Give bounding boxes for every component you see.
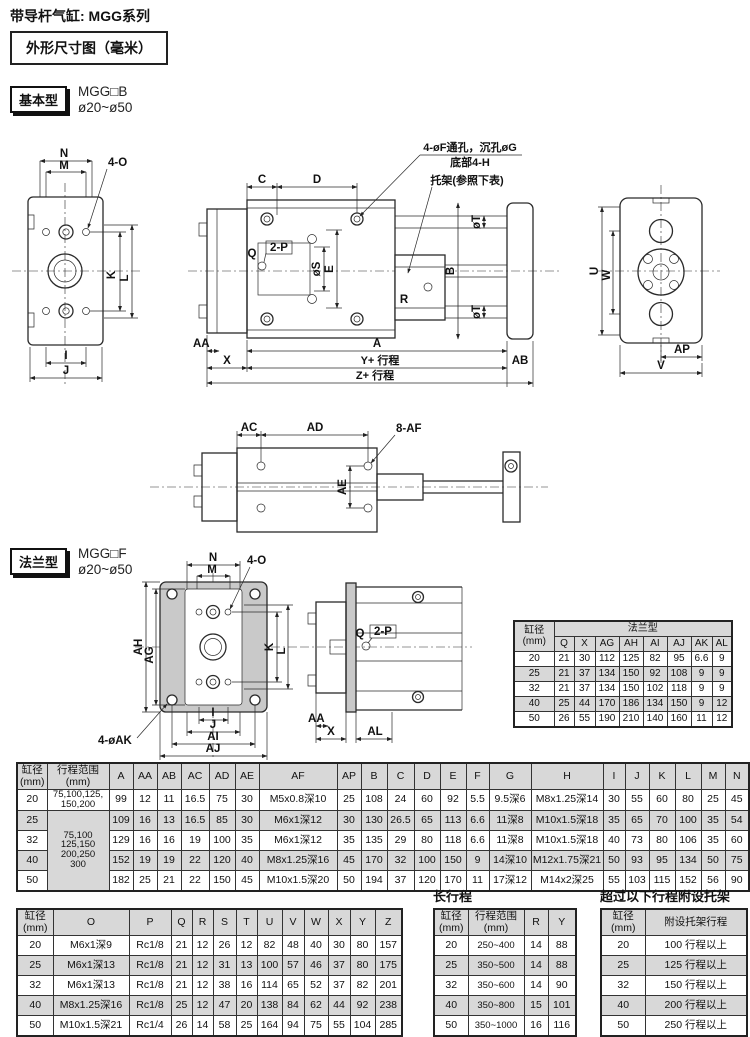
- cell: 250 行程以上: [645, 1016, 747, 1037]
- cell: 65: [282, 976, 304, 996]
- dim-label-m: M: [207, 564, 217, 576]
- cell: 55: [328, 1016, 350, 1037]
- cell: 12: [712, 697, 732, 712]
- column-header: Z: [375, 909, 402, 936]
- cell: 12: [712, 712, 732, 728]
- cell: 32: [601, 976, 645, 996]
- dim-label-l: L: [276, 647, 288, 654]
- cell: 55: [574, 712, 595, 728]
- column-header: U: [257, 909, 282, 936]
- cell: 30: [328, 936, 350, 956]
- cell: 114: [257, 976, 282, 996]
- column-header: F: [466, 763, 489, 790]
- cell: 20: [17, 936, 53, 956]
- dim-label-j: J: [210, 719, 216, 731]
- cell: 9: [691, 697, 712, 712]
- page-title: 带导杆气缸: MGG系列: [10, 6, 150, 26]
- dim-label-8af: 8-AF: [396, 423, 422, 435]
- column-header: 缸径 (mm): [514, 621, 554, 652]
- column-header: 行程范围 (mm): [47, 763, 109, 790]
- dim-label-ab: AB: [512, 355, 529, 367]
- cell: 45: [235, 870, 259, 891]
- column-header: 缸径 (mm): [17, 909, 53, 936]
- column-header: AJ: [667, 637, 691, 652]
- cell: 30: [235, 790, 259, 811]
- cell: 26: [171, 1016, 192, 1037]
- cell: 80: [414, 830, 440, 850]
- table-row: 20 75,100,125, 150,200 99121116.57530M5x…: [17, 790, 749, 811]
- dim-label-y-stroke: Y+ 行程: [361, 353, 400, 367]
- cell: 94: [282, 1016, 304, 1037]
- column-header: H: [531, 763, 603, 790]
- column-header: AF: [259, 763, 337, 790]
- dim-label-ai: AI: [207, 731, 219, 743]
- cell: 16: [133, 830, 157, 850]
- cell: 92: [643, 667, 667, 682]
- table-row: 40200 行程以上: [601, 996, 747, 1016]
- table-row: 32213713415010211899: [514, 682, 732, 697]
- cell: 40: [17, 850, 47, 870]
- dim-label-b: B: [445, 267, 457, 275]
- cell: 104: [350, 1016, 375, 1037]
- column-header: AA: [133, 763, 157, 790]
- cell: 14: [524, 976, 548, 996]
- cell: 9: [466, 850, 489, 870]
- dim-label-ac: AC: [241, 422, 258, 434]
- cell: 32: [17, 830, 47, 850]
- cell: Rc1/8: [129, 956, 171, 976]
- dim-label-u: U: [589, 267, 601, 275]
- cell: 75: [725, 850, 749, 870]
- cell: 16: [524, 1016, 548, 1037]
- cell: 37: [328, 976, 350, 996]
- dim-label-n: N: [60, 148, 68, 160]
- dim-label-n: N: [209, 552, 217, 564]
- cell: 50: [603, 850, 625, 870]
- cell: 19: [157, 850, 181, 870]
- cell: 11: [691, 712, 712, 728]
- cell: 9: [712, 682, 732, 697]
- cell: 25: [236, 1016, 257, 1037]
- dim-label-w: W: [601, 269, 613, 280]
- cell: 19: [133, 850, 157, 870]
- cell: 186: [619, 697, 643, 712]
- cell: 50: [601, 1016, 645, 1037]
- cell: 44: [574, 697, 595, 712]
- cell: 21: [554, 652, 574, 667]
- cell: Rc1/4: [129, 1016, 171, 1037]
- cell: 170: [595, 697, 619, 712]
- cell: 37: [574, 682, 595, 697]
- cell: 21: [157, 870, 181, 891]
- column-header: D: [414, 763, 440, 790]
- cell: 20: [514, 652, 554, 667]
- cell: 50: [434, 1016, 468, 1037]
- column-header: 缸径 (mm): [601, 909, 645, 936]
- cell: 11深8: [489, 830, 531, 850]
- cell: 50: [701, 850, 725, 870]
- dim-label-phis: øS: [311, 261, 323, 276]
- column-header: AL: [712, 637, 732, 652]
- dim-label-4o: 4-O: [108, 157, 127, 169]
- column-header: S: [213, 909, 236, 936]
- cell: 45: [337, 850, 361, 870]
- cell: 35: [337, 830, 361, 850]
- cell: 238: [375, 996, 402, 1016]
- cell: 13: [236, 956, 257, 976]
- cell: 150: [619, 682, 643, 697]
- cell: 70: [649, 810, 675, 830]
- cell: 26: [213, 936, 236, 956]
- cell: 84: [282, 996, 304, 1016]
- dim-label-k: K: [106, 270, 118, 279]
- column-header: 行程范围 (mm): [468, 909, 524, 936]
- port-label-q: Q: [248, 248, 257, 260]
- dimension-section-title: 外形尺寸图（毫米）: [10, 31, 168, 65]
- cell: 157: [375, 936, 402, 956]
- column-header: L: [675, 763, 701, 790]
- dim-label-l: L: [119, 274, 131, 281]
- dim-label-v: V: [657, 360, 665, 372]
- cell: 12: [192, 976, 213, 996]
- cell: M6x1深12: [259, 810, 337, 830]
- cell: 25: [514, 667, 554, 682]
- table-row: 20213011212582956.69: [514, 652, 732, 667]
- cell: 135: [361, 830, 387, 850]
- cell: 100: [209, 830, 235, 850]
- cell: 13: [157, 810, 181, 830]
- cell: 108: [667, 667, 691, 682]
- cell: 20: [434, 936, 468, 956]
- column-header: V: [282, 909, 304, 936]
- cell: 65: [625, 810, 649, 830]
- cell: 60: [725, 830, 749, 850]
- cell: 21: [171, 936, 192, 956]
- cell: 164: [257, 1016, 282, 1037]
- cell: 16: [133, 810, 157, 830]
- cell: 6.6: [691, 652, 712, 667]
- column-header: AP: [337, 763, 361, 790]
- cell: 108: [361, 790, 387, 811]
- cell: 150: [209, 870, 235, 891]
- cell: 26.5: [387, 810, 414, 830]
- dim-label-phit-top: øT: [471, 215, 483, 229]
- cell: 21: [171, 956, 192, 976]
- cell: 134: [675, 850, 701, 870]
- dim-label-ap: AP: [674, 344, 690, 356]
- cell: 152: [109, 850, 133, 870]
- table-row: 40350~80015101: [434, 996, 576, 1016]
- cell: 350~800: [468, 996, 524, 1016]
- table-row: 32150 行程以上: [601, 976, 747, 996]
- dim-label-i: I: [211, 707, 214, 719]
- cell: 80: [675, 790, 701, 811]
- table-row: 402544170186134150912: [514, 697, 732, 712]
- long-stroke-title: 长行程: [433, 886, 472, 905]
- bracket-note: 托架(参照下表): [430, 173, 504, 187]
- cell: 285: [375, 1016, 402, 1037]
- cell: 35: [235, 830, 259, 850]
- basic-model: MGG□B: [78, 84, 132, 100]
- cell: 20: [601, 936, 645, 956]
- cell: 101: [548, 996, 576, 1016]
- cell: 14: [524, 936, 548, 956]
- cell: 35: [603, 810, 625, 830]
- cell: M10x1.5深20: [259, 870, 337, 891]
- cell: 65: [414, 810, 440, 830]
- cell: 35: [701, 810, 725, 830]
- cell: 100: [257, 956, 282, 976]
- cell: 118: [667, 682, 691, 697]
- table-row: 50M10x1.5深21Rc1/426145825164947555104285: [17, 1016, 402, 1037]
- dim-label-e: E: [324, 265, 336, 273]
- cell: 106: [675, 830, 701, 850]
- cell: 44: [328, 996, 350, 1016]
- table-row: 32350~6001490: [434, 976, 576, 996]
- cell: 38: [213, 976, 236, 996]
- cell: 250~400: [468, 936, 524, 956]
- column-header: C: [387, 763, 414, 790]
- cell: 150: [667, 697, 691, 712]
- cell: M10x1.5深18: [531, 830, 603, 850]
- cell: Rc1/8: [129, 976, 171, 996]
- cell: 25: [554, 697, 574, 712]
- cell: 134: [643, 697, 667, 712]
- dim-label-ae: AE: [337, 479, 349, 495]
- column-header: 缸径 (mm): [17, 763, 47, 790]
- cell: 80: [350, 936, 375, 956]
- dim-label-aj: AJ: [206, 743, 221, 755]
- flange-side-view: Q 2-P AA X AL: [300, 583, 472, 743]
- cell: 22: [181, 870, 209, 891]
- cell: 22: [181, 850, 209, 870]
- column-header: AH: [619, 637, 643, 652]
- dim-label-c: C: [258, 174, 266, 186]
- cell: 90: [548, 976, 576, 996]
- cell: 134: [595, 667, 619, 682]
- table-row: 5026551902101401601112: [514, 712, 732, 728]
- cell: M6x1深9: [53, 936, 129, 956]
- cell: 80: [350, 956, 375, 976]
- cell: 118: [440, 830, 466, 850]
- cell: 30: [574, 652, 595, 667]
- basic-side-view: AC AD 8-AF AE: [150, 422, 548, 532]
- cell: 160: [667, 712, 691, 728]
- cell: 25: [171, 996, 192, 1016]
- column-header: P: [129, 909, 171, 936]
- cell: 150: [440, 850, 466, 870]
- cell: 75,100 125,150 200,250 300: [47, 810, 109, 891]
- cell: 17深12: [489, 870, 531, 891]
- column-header: W: [304, 909, 328, 936]
- cell: 32: [514, 682, 554, 697]
- cell: M8x1.25深14: [531, 790, 603, 811]
- column-header: M: [701, 763, 725, 790]
- dim-label-j: J: [63, 365, 69, 377]
- column-header: E: [440, 763, 466, 790]
- cell: 82: [257, 936, 282, 956]
- cell: 15: [524, 996, 548, 1016]
- cell: M5x0.8深10: [259, 790, 337, 811]
- cell: 55: [625, 790, 649, 811]
- cell: 175: [375, 956, 402, 976]
- cell: 85: [209, 810, 235, 830]
- cell: 30: [337, 810, 361, 830]
- cell: 25: [133, 870, 157, 891]
- cell: 100 行程以上: [645, 936, 747, 956]
- column-header: Y: [548, 909, 576, 936]
- flange-dimension-table: 缸径 (mm) 法兰型 Q X AG AH AI AJ AK AL 202130…: [513, 620, 733, 728]
- table-row: 25350~5001488: [434, 956, 576, 976]
- cell: 50: [337, 870, 361, 891]
- cell: 31: [213, 956, 236, 976]
- column-header: AB: [157, 763, 181, 790]
- cell: 82: [350, 976, 375, 996]
- column-header: X: [574, 637, 595, 652]
- basic-model-block: MGG□B ø20~ø50: [78, 84, 132, 116]
- cell: 138: [257, 996, 282, 1016]
- cell: 37: [328, 956, 350, 976]
- basic-left-end-view: N M 4-O K L I J: [12, 148, 142, 387]
- table-row: 50250 行程以上: [601, 1016, 747, 1037]
- cell: Rc1/8: [129, 996, 171, 1016]
- cell: 80: [649, 830, 675, 850]
- dim-label-d: D: [313, 174, 321, 186]
- table-row: 50350~100016116: [434, 1016, 576, 1037]
- catalog-page: 带导杆气缸: MGG系列 外形尺寸图（毫米） 基本型 MGG□B ø20~ø50…: [0, 0, 750, 1037]
- basic-type-badge: 基本型: [10, 86, 67, 113]
- port-label-2p: 2-P: [270, 242, 288, 254]
- dim-label-k: K: [264, 642, 276, 651]
- hole-note-line2: 底部4-H: [450, 155, 490, 169]
- cell: 109: [109, 810, 133, 830]
- cell: 210: [619, 712, 643, 728]
- cell: 5.5: [466, 790, 489, 811]
- port-label-2p: 2-P: [374, 626, 392, 638]
- cell: 73: [625, 830, 649, 850]
- flange-type-drawing: N M 4-O AH AG K L I J AI: [0, 545, 510, 760]
- cell: M6x1深13: [53, 976, 129, 996]
- cell: 21: [554, 667, 574, 682]
- cell: M6x1深13: [53, 956, 129, 976]
- dim-label-4o: 4-O: [247, 555, 266, 567]
- cell: 88: [548, 956, 576, 976]
- cell: 25: [601, 956, 645, 976]
- cell: 100: [675, 810, 701, 830]
- table-row: 20100 行程以上: [601, 936, 747, 956]
- column-header: Q: [171, 909, 192, 936]
- cell: 95: [649, 850, 675, 870]
- cell: 82: [643, 652, 667, 667]
- cell: 9: [712, 667, 732, 682]
- cell: 9: [691, 667, 712, 682]
- cell: 113: [440, 810, 466, 830]
- cell: 40: [235, 850, 259, 870]
- cell: 32: [387, 850, 414, 870]
- cell: 9: [712, 652, 732, 667]
- column-header: AI: [643, 637, 667, 652]
- cell: 25: [337, 790, 361, 811]
- cell: 12: [133, 790, 157, 811]
- cell: 37: [574, 667, 595, 682]
- column-header: A: [109, 763, 133, 790]
- column-header: G: [489, 763, 531, 790]
- cell: 20: [236, 996, 257, 1016]
- column-header: 缸径 (mm): [434, 909, 468, 936]
- cell: 40: [17, 996, 53, 1016]
- column-header: 附设托架行程: [645, 909, 747, 936]
- cell: 62: [304, 996, 328, 1016]
- column-header: AD: [209, 763, 235, 790]
- cell: 12: [192, 936, 213, 956]
- basic-right-end-view: U W AP V: [589, 185, 720, 377]
- dim-label-4ak: 4-øAK: [98, 735, 133, 747]
- cell: 6.6: [466, 810, 489, 830]
- cell: 25: [434, 956, 468, 976]
- column-header: X: [328, 909, 350, 936]
- cell: 194: [361, 870, 387, 891]
- cell: 35: [701, 830, 725, 850]
- lower-dimension-table: 缸径 (mm) O P Q R S T U V W X Y Z 20M6x1深9…: [16, 908, 403, 1037]
- cell: 12: [192, 996, 213, 1016]
- dim-label-a: A: [373, 338, 381, 350]
- cell: 25: [701, 790, 725, 811]
- column-header: R: [192, 909, 213, 936]
- cell: 32: [17, 976, 53, 996]
- dim-label-x: X: [327, 726, 335, 738]
- column-header: I: [603, 763, 625, 790]
- cell: 95: [667, 652, 691, 667]
- cell: 40: [601, 996, 645, 1016]
- cell: 75: [209, 790, 235, 811]
- cell: 12: [192, 956, 213, 976]
- cell: 30: [235, 810, 259, 830]
- cell: 170: [361, 850, 387, 870]
- column-header: T: [236, 909, 257, 936]
- cell: 50: [17, 870, 47, 891]
- cell: 37: [387, 870, 414, 891]
- cell: 16: [236, 976, 257, 996]
- dim-label-z-stroke: Z+ 行程: [356, 368, 394, 382]
- cell: 182: [109, 870, 133, 891]
- cell: 54: [725, 810, 749, 830]
- table-row: 40 15219192212040M8x1.25深164517032100150…: [17, 850, 749, 870]
- cell: 102: [643, 682, 667, 697]
- cell: 130: [361, 810, 387, 830]
- cell: 11: [157, 790, 181, 811]
- cell: M10x1.5深18: [531, 810, 603, 830]
- cell: 350~1000: [468, 1016, 524, 1037]
- cell: 30: [603, 790, 625, 811]
- port-label-q: Q: [356, 628, 365, 640]
- cell: 9: [691, 682, 712, 697]
- cell: 40: [514, 697, 554, 712]
- cell: 57: [282, 956, 304, 976]
- cell: 19: [181, 830, 209, 850]
- dim-label-x: X: [223, 355, 231, 367]
- cell: 150 行程以上: [645, 976, 747, 996]
- cell: 21: [554, 682, 574, 697]
- cell: 112: [595, 652, 619, 667]
- cell: 140: [643, 712, 667, 728]
- basic-type-drawing: N M 4-O K L I J: [0, 135, 750, 535]
- dim-label-al: AL: [367, 726, 382, 738]
- cell: 9.5深6: [489, 790, 531, 811]
- cell: 58: [213, 1016, 236, 1037]
- table-row: 25 75,100 125,150 200,250 300 109161316.…: [17, 810, 749, 830]
- column-header: AE: [235, 763, 259, 790]
- cell: 134: [595, 682, 619, 697]
